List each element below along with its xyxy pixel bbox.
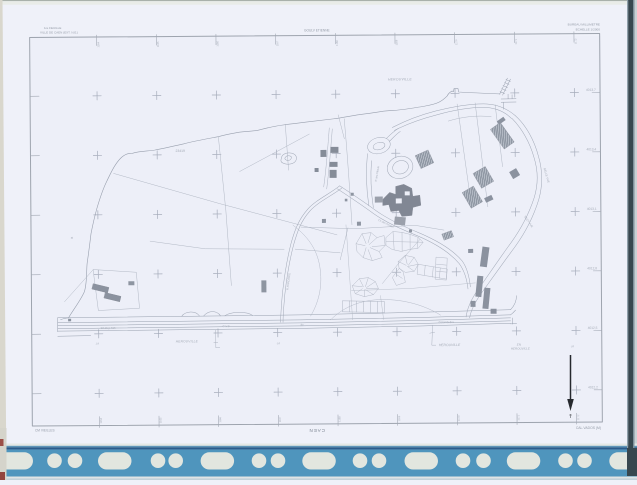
svg-text:JA: JA bbox=[96, 342, 99, 346]
svg-text:4013,4: 4013,4 bbox=[586, 147, 596, 151]
svg-text:1172: 1172 bbox=[576, 414, 580, 420]
svg-text:C.V.9: C.V.9 bbox=[223, 324, 230, 328]
svg-text:1165: 1165 bbox=[159, 417, 163, 423]
svg-text:HEROUVILLE: HEROUVILLE bbox=[511, 347, 531, 351]
svg-text:4012,8: 4012,8 bbox=[587, 266, 597, 270]
svg-text:JA: JA bbox=[277, 341, 280, 345]
svg-text:HEROUVILLE: HEROUVILLE bbox=[176, 339, 199, 343]
svg-text:1169: 1169 bbox=[394, 39, 398, 45]
svg-text:4013,7: 4013,7 bbox=[586, 88, 596, 92]
svg-text:1168: 1168 bbox=[337, 416, 341, 422]
svg-text:ECHELLE 1/2000: ECHELLE 1/2000 bbox=[576, 28, 601, 32]
svg-text:1170: 1170 bbox=[454, 39, 458, 45]
svg-text:VILLE DE CAEN (EXT. N.E.): VILLE DE CAEN (EXT. N.E.) bbox=[40, 31, 78, 35]
svg-text:JA: JA bbox=[571, 344, 574, 348]
svg-text:1171: 1171 bbox=[516, 414, 520, 420]
svg-text:1168: 1168 bbox=[335, 40, 339, 46]
svg-text:1165: 1165 bbox=[156, 41, 160, 47]
svg-text:CAL.VADOS (M): CAL.VADOS (M) bbox=[576, 426, 601, 430]
svg-text:CAEN: CAEN bbox=[308, 428, 325, 433]
svg-text:Ch.Dep.515: Ch.Dep.515 bbox=[101, 326, 116, 330]
svg-text:HEROUVILLE: HEROUVILLE bbox=[388, 77, 412, 81]
svg-text:1169: 1169 bbox=[397, 415, 401, 421]
svg-text:HEROUVILLE: HEROUVILLE bbox=[439, 343, 461, 347]
svg-text:1164: 1164 bbox=[99, 417, 103, 423]
svg-text:1164: 1164 bbox=[96, 41, 100, 47]
svg-text:B: B bbox=[70, 237, 74, 239]
svg-text:de: de bbox=[301, 323, 305, 327]
svg-text:4012,5: 4012,5 bbox=[588, 326, 598, 330]
svg-text:Colombelles: Colombelles bbox=[439, 320, 455, 324]
svg-text:1166: 1166 bbox=[218, 417, 222, 423]
svg-text:1re FEUILLE: 1re FEUILLE bbox=[44, 26, 61, 30]
svg-text:23419: 23419 bbox=[175, 149, 185, 153]
svg-text:1171: 1171 bbox=[514, 38, 518, 44]
svg-text:4013,1: 4013,1 bbox=[587, 207, 597, 211]
svg-text:1170: 1170 bbox=[457, 415, 461, 421]
svg-text:1167: 1167 bbox=[275, 40, 279, 46]
svg-text:BUREAU MILLIMETRE: BUREAU MILLIMETRE bbox=[568, 23, 600, 27]
svg-text:1172: 1172 bbox=[573, 38, 577, 44]
svg-text:CM VIEILLES: CM VIEILLES bbox=[35, 429, 55, 433]
svg-text:1166: 1166 bbox=[215, 41, 219, 47]
svg-text:GOULV ETIENNE: GOULV ETIENNE bbox=[304, 29, 330, 33]
svg-text:4012,2: 4012,2 bbox=[588, 385, 598, 389]
svg-text:1167: 1167 bbox=[278, 416, 282, 422]
